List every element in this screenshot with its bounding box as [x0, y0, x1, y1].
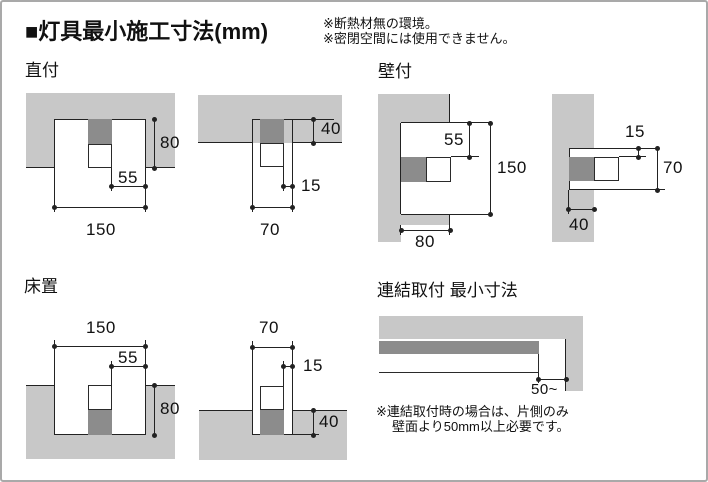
dim-line-height	[490, 123, 491, 214]
recess-edge-line	[401, 214, 450, 215]
dim-label-height: 70	[663, 159, 683, 176]
dim-dot	[399, 228, 404, 233]
dim-dot	[143, 364, 148, 369]
recess-edge-line	[569, 189, 594, 190]
dim-label-width: 70	[259, 319, 279, 336]
dim-dot	[467, 155, 472, 160]
dim-dot	[566, 207, 571, 212]
dim-dot	[250, 205, 255, 210]
recess-edge-line	[54, 385, 55, 435]
dim-dot	[636, 155, 641, 160]
fixture-body	[401, 157, 426, 182]
spec-diagram-panel: ■灯具最小施工寸法(mm) ※断熱材無の環境。 ※密閉空間には使用できません。 …	[0, 0, 708, 482]
dim-label-width: 70	[260, 221, 280, 238]
fixture-lamp	[260, 386, 284, 410]
dim-dot	[109, 184, 114, 189]
dim-dot	[281, 184, 286, 189]
note-renketsu-line1: ※連結取付時の場合は、片側のみ	[376, 404, 569, 419]
dim-line-depth	[568, 209, 594, 210]
dim-line-depth	[401, 230, 450, 231]
dim-dot	[655, 188, 660, 193]
ceiling-surface-line	[198, 142, 252, 143]
recess-edge-line	[252, 410, 253, 435]
recess-edge-line	[401, 122, 450, 123]
section-label-yukaoki: 床置	[24, 278, 58, 295]
wall-column	[378, 94, 401, 242]
dim-label-width: 150	[86, 319, 116, 336]
ceiling-slab	[26, 93, 175, 119]
note-insulation: ※断熱材無の環境。	[323, 16, 438, 31]
dim-line-top	[469, 123, 470, 157]
dim-dot	[143, 205, 148, 210]
dim-line-thickness	[313, 119, 314, 143]
dim-dot	[52, 344, 57, 349]
ext-line	[451, 156, 479, 157]
note-renketsu-line2: 壁面より50mm以上必要です。	[392, 419, 570, 434]
dim-label-depth: 80	[160, 134, 180, 151]
fixture-lamp	[594, 157, 619, 181]
dim-label-height: 150	[497, 159, 527, 176]
fixture-body	[260, 410, 284, 435]
note-enclosed-space: ※密閉空間には使用できません。	[323, 31, 516, 46]
dim-label-depth: 80	[415, 233, 435, 250]
fixture-lamp	[426, 157, 451, 182]
dim-label-depth: 40	[569, 216, 589, 233]
dim-dot	[655, 146, 660, 151]
dim-dot	[564, 377, 569, 382]
ceiling-surface-line	[26, 167, 54, 168]
dim-label-thickness: 40	[321, 120, 341, 137]
ceiling-surface-line	[145, 167, 175, 168]
fixture-lamp	[260, 143, 284, 167]
dim-dot	[281, 364, 286, 369]
dim-dot	[143, 184, 148, 189]
ceiling-surface-line	[293, 142, 342, 143]
dim-label-top: 55	[444, 131, 464, 148]
dim-dot	[290, 345, 295, 350]
dim-dot	[152, 383, 157, 388]
wall-flange-top	[401, 94, 450, 123]
dim-dot	[311, 141, 316, 146]
section-label-renketsu: 連結取付 最小寸法	[377, 282, 518, 299]
dim-dot	[109, 364, 114, 369]
ext-line	[450, 214, 492, 215]
section-label-chokuzuke: 直付	[25, 62, 59, 79]
floor-surface-line	[199, 410, 252, 411]
fixture-lamp	[88, 144, 112, 168]
ext-line	[292, 341, 293, 410]
fixture-body	[88, 119, 112, 145]
floor-surface-line	[293, 410, 347, 411]
ext-line	[619, 156, 646, 157]
fixture-body	[88, 410, 112, 435]
dim-label-depth: 40	[319, 413, 339, 430]
ext-line	[594, 148, 658, 149]
ext-line	[252, 341, 253, 410]
dim-label-clearance: 50~	[531, 382, 558, 397]
dim-dot	[467, 121, 472, 126]
recess-edge-line	[449, 214, 450, 225]
dim-label-side: 15	[303, 357, 323, 374]
recess-edge-line	[292, 119, 293, 143]
section-label-kabezuke: 壁付	[378, 63, 412, 80]
dim-label-side: 55	[118, 169, 138, 186]
dim-dot	[143, 344, 148, 349]
dim-dot	[488, 121, 493, 126]
recess-edge-line	[54, 119, 55, 168]
dim-dot	[290, 205, 295, 210]
recess-edge-line	[252, 119, 253, 143]
dim-dot	[152, 117, 157, 122]
page-title: ■灯具最小施工寸法(mm)	[25, 20, 268, 44]
dim-dot	[152, 433, 157, 438]
dim-dot	[290, 364, 295, 369]
dim-label-width: 150	[86, 221, 116, 238]
wall-flange-bottom	[401, 214, 450, 225]
dim-dot	[152, 166, 157, 171]
dim-line-clearance	[538, 379, 566, 380]
ext-line	[252, 143, 253, 212]
recess-edge-line	[145, 385, 146, 435]
dim-label-side: 15	[301, 177, 321, 194]
floor-surface-line	[145, 385, 175, 386]
dim-label-depth: 80	[160, 400, 180, 417]
recess-edge-line	[292, 410, 293, 435]
recess-edge-line	[569, 148, 594, 149]
dim-line-width	[54, 207, 146, 208]
dim-line-width	[252, 347, 293, 348]
recess-edge-line	[145, 119, 146, 168]
fixture-body	[260, 119, 284, 143]
dim-dot	[311, 408, 316, 413]
dim-dot	[311, 117, 316, 122]
dim-dot	[52, 205, 57, 210]
dim-line-depth	[154, 119, 155, 168]
dim-label-top: 15	[625, 123, 645, 140]
wall-face-line	[565, 339, 566, 391]
recess-edge-line	[449, 94, 450, 123]
ext-line	[292, 143, 293, 212]
ceiling-slab	[379, 316, 566, 339]
dim-line-height	[657, 148, 658, 190]
ceiling-arm-left	[26, 119, 54, 168]
fixture-body	[569, 157, 594, 181]
dim-line-depth	[154, 385, 155, 435]
fixture-body	[379, 341, 539, 354]
dim-line-depth	[313, 410, 314, 435]
dim-dot	[448, 228, 453, 233]
dim-dot	[250, 345, 255, 350]
dim-dot	[290, 184, 295, 189]
dim-dot	[592, 207, 597, 212]
fixture-lamp	[379, 354, 539, 373]
dim-line-width	[252, 207, 293, 208]
dim-line-width	[54, 346, 146, 347]
dim-dot	[636, 146, 641, 151]
floor-surface-line	[26, 385, 54, 386]
fixture-lamp	[88, 385, 112, 410]
dim-label-side: 55	[118, 349, 138, 366]
dim-dot	[311, 433, 316, 438]
